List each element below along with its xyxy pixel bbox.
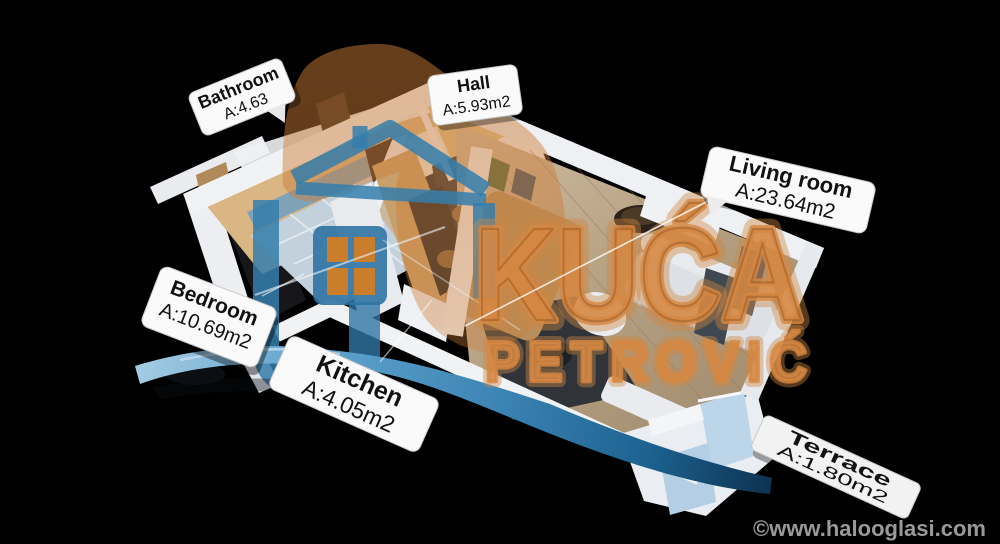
- svg-text:PETROVIĆ: PETROVIĆ: [485, 331, 815, 393]
- svg-text:©www.halooglasi.com: ©www.halooglasi.com: [753, 516, 986, 541]
- svg-text:KUĆA: KUĆA: [474, 201, 803, 349]
